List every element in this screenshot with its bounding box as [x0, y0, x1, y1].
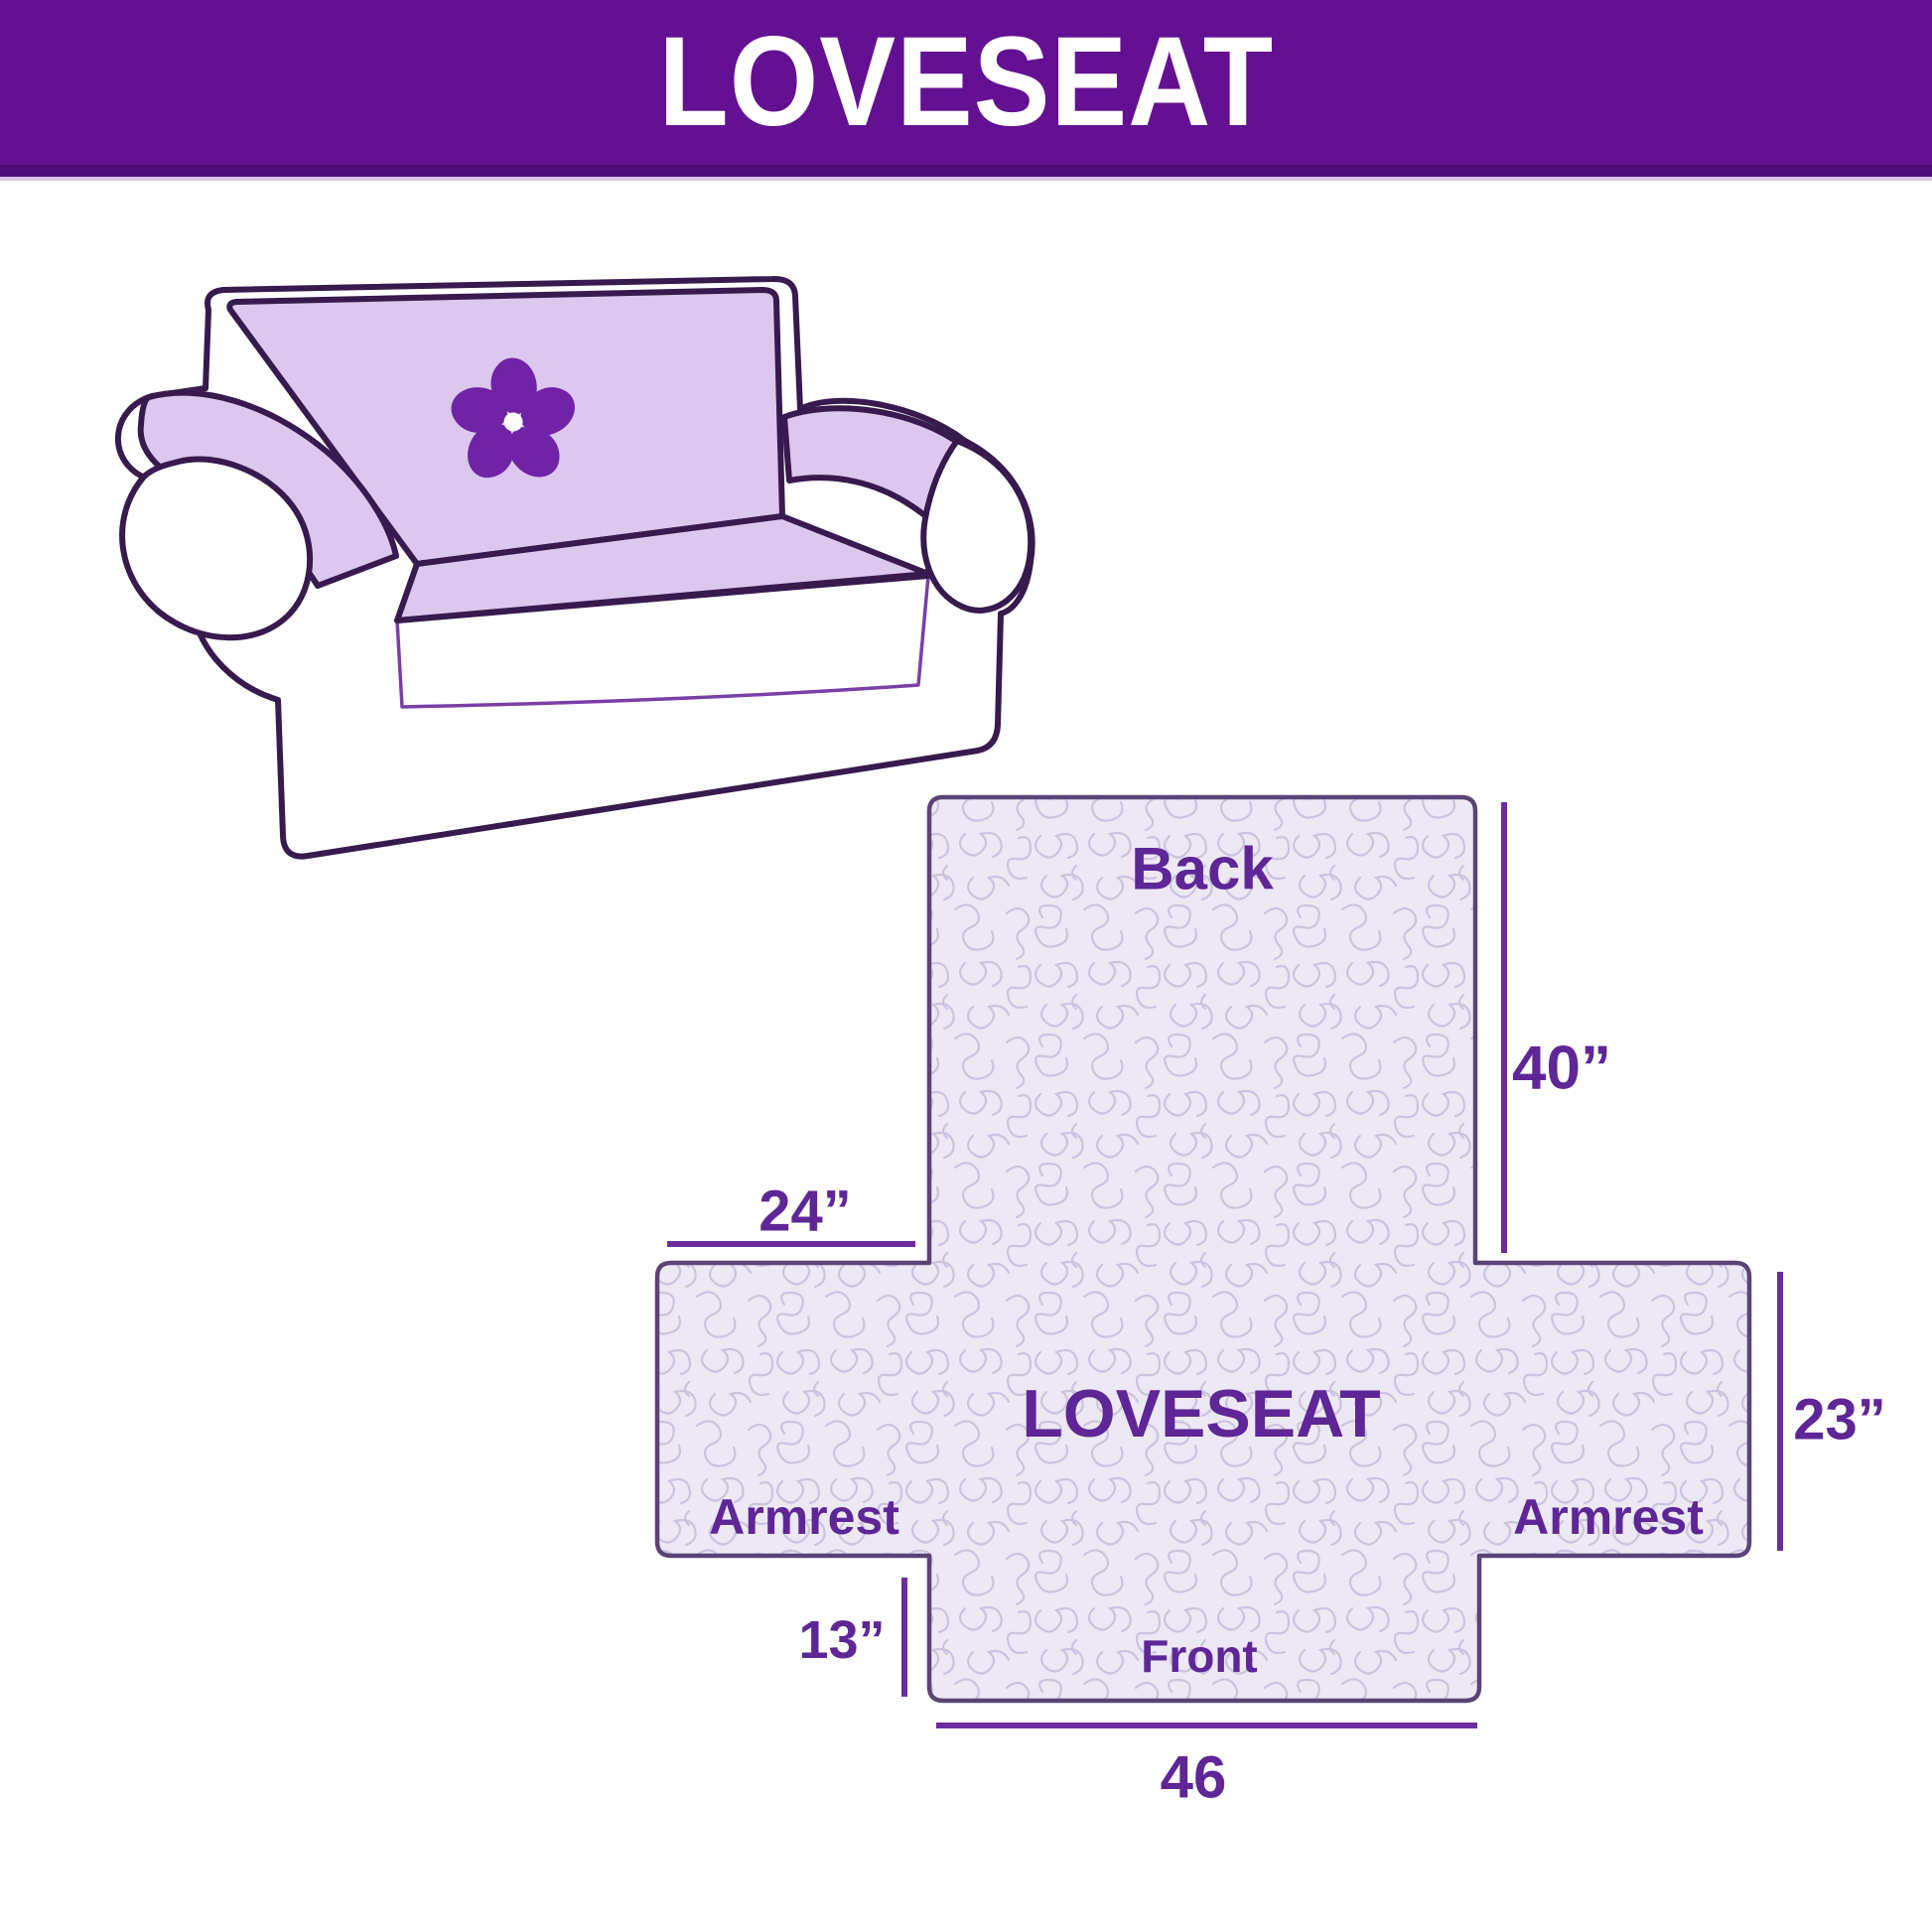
cover-cross-shape	[657, 797, 1749, 1701]
armrest-left-label: Armrest	[709, 1489, 899, 1545]
dimension-label-40: 40”	[1512, 1035, 1611, 1103]
front-panel-label: Front	[1141, 1630, 1258, 1682]
loveseat-illustration	[118, 279, 1033, 857]
dimension-label-24: 24”	[759, 1179, 852, 1244]
dimension-label-23: 23”	[1793, 1388, 1886, 1452]
center-loveseat-label: LOVESEAT	[1022, 1376, 1380, 1451]
diagram-scene: Back LOVESEAT Armrest Armrest Front 40” …	[0, 0, 1932, 1932]
pinwheel-center-dot	[504, 413, 523, 432]
right-armrest-roll	[923, 441, 1031, 611]
dimension-label-46: 46	[1161, 1744, 1227, 1811]
back-panel-label: Back	[1131, 836, 1274, 902]
dimension-label-13: 13”	[798, 1610, 885, 1670]
armrest-right-label: Armrest	[1513, 1489, 1704, 1545]
cover-layout-diagram: Back LOVESEAT Armrest Armrest Front 40” …	[657, 797, 1886, 1811]
